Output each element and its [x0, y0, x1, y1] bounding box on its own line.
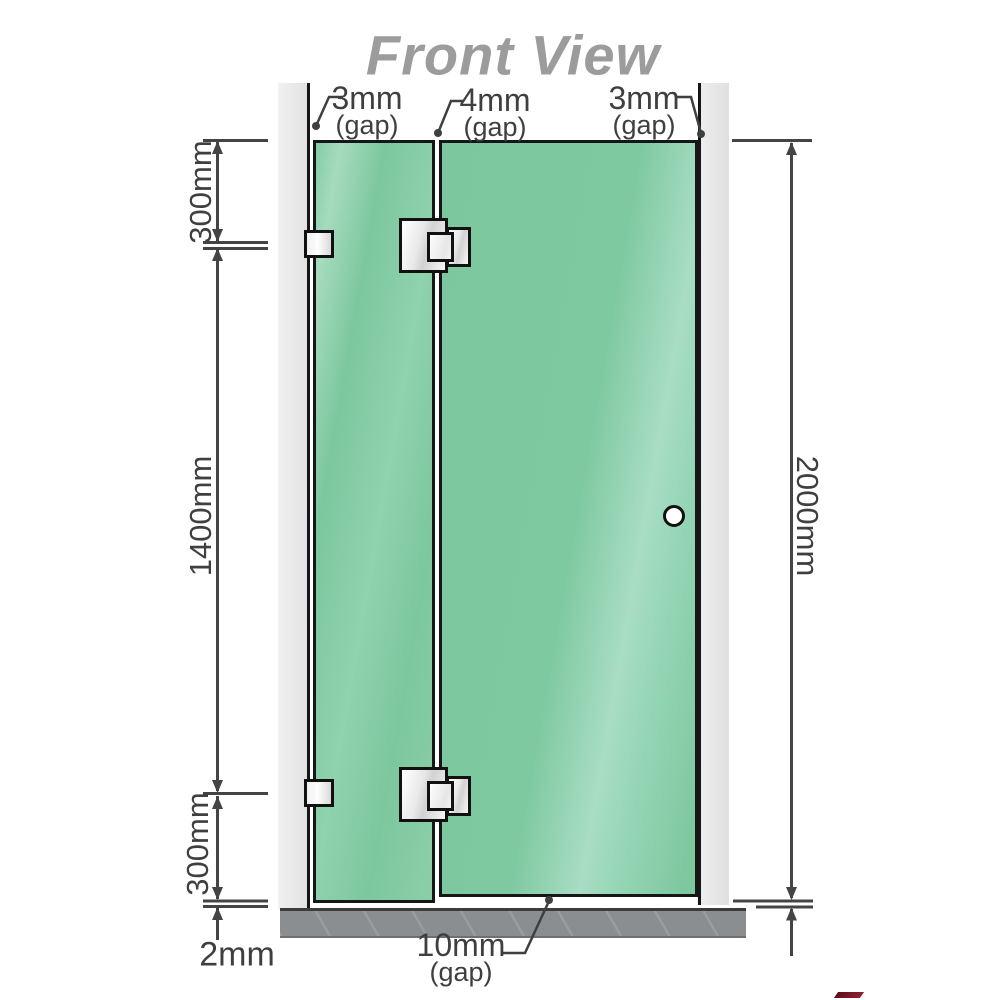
logo-fragment: [834, 992, 864, 998]
dim-label-left-middle: 1400mm: [183, 456, 219, 577]
door-knob-icon: [663, 505, 685, 527]
dim-label-left-top: 300mm: [183, 140, 219, 243]
floor-base: [280, 908, 746, 938]
front-view-diagram: Front View: [0, 0, 1000, 1000]
dim-label-base-gap: 2mm: [199, 936, 275, 975]
hinge-bottom-tab: [427, 781, 454, 811]
gap-label-top-left: 3mm (gap): [331, 82, 402, 139]
wall-right: [698, 83, 729, 905]
dim-label-right: 2000mm: [789, 456, 825, 577]
gap-label-top-middle: 4mm (gap): [459, 84, 530, 141]
wall-bracket-top: [304, 230, 334, 258]
gap-suffix: (gap): [331, 112, 402, 139]
glass-panel-door: [439, 140, 698, 897]
dim-label-left-bottom: 300mm: [180, 792, 216, 895]
gap-label-bottom: 10mm (gap): [417, 929, 506, 986]
gap-suffix: (gap): [459, 114, 530, 141]
gap-suffix: (gap): [417, 959, 506, 986]
gap-suffix: (gap): [608, 112, 679, 139]
diagram-title: Front View: [366, 23, 660, 88]
hinge-top-tab: [427, 232, 454, 262]
wall-bracket-bottom: [304, 779, 334, 807]
gap-label-top-right: 3mm (gap): [608, 82, 679, 139]
